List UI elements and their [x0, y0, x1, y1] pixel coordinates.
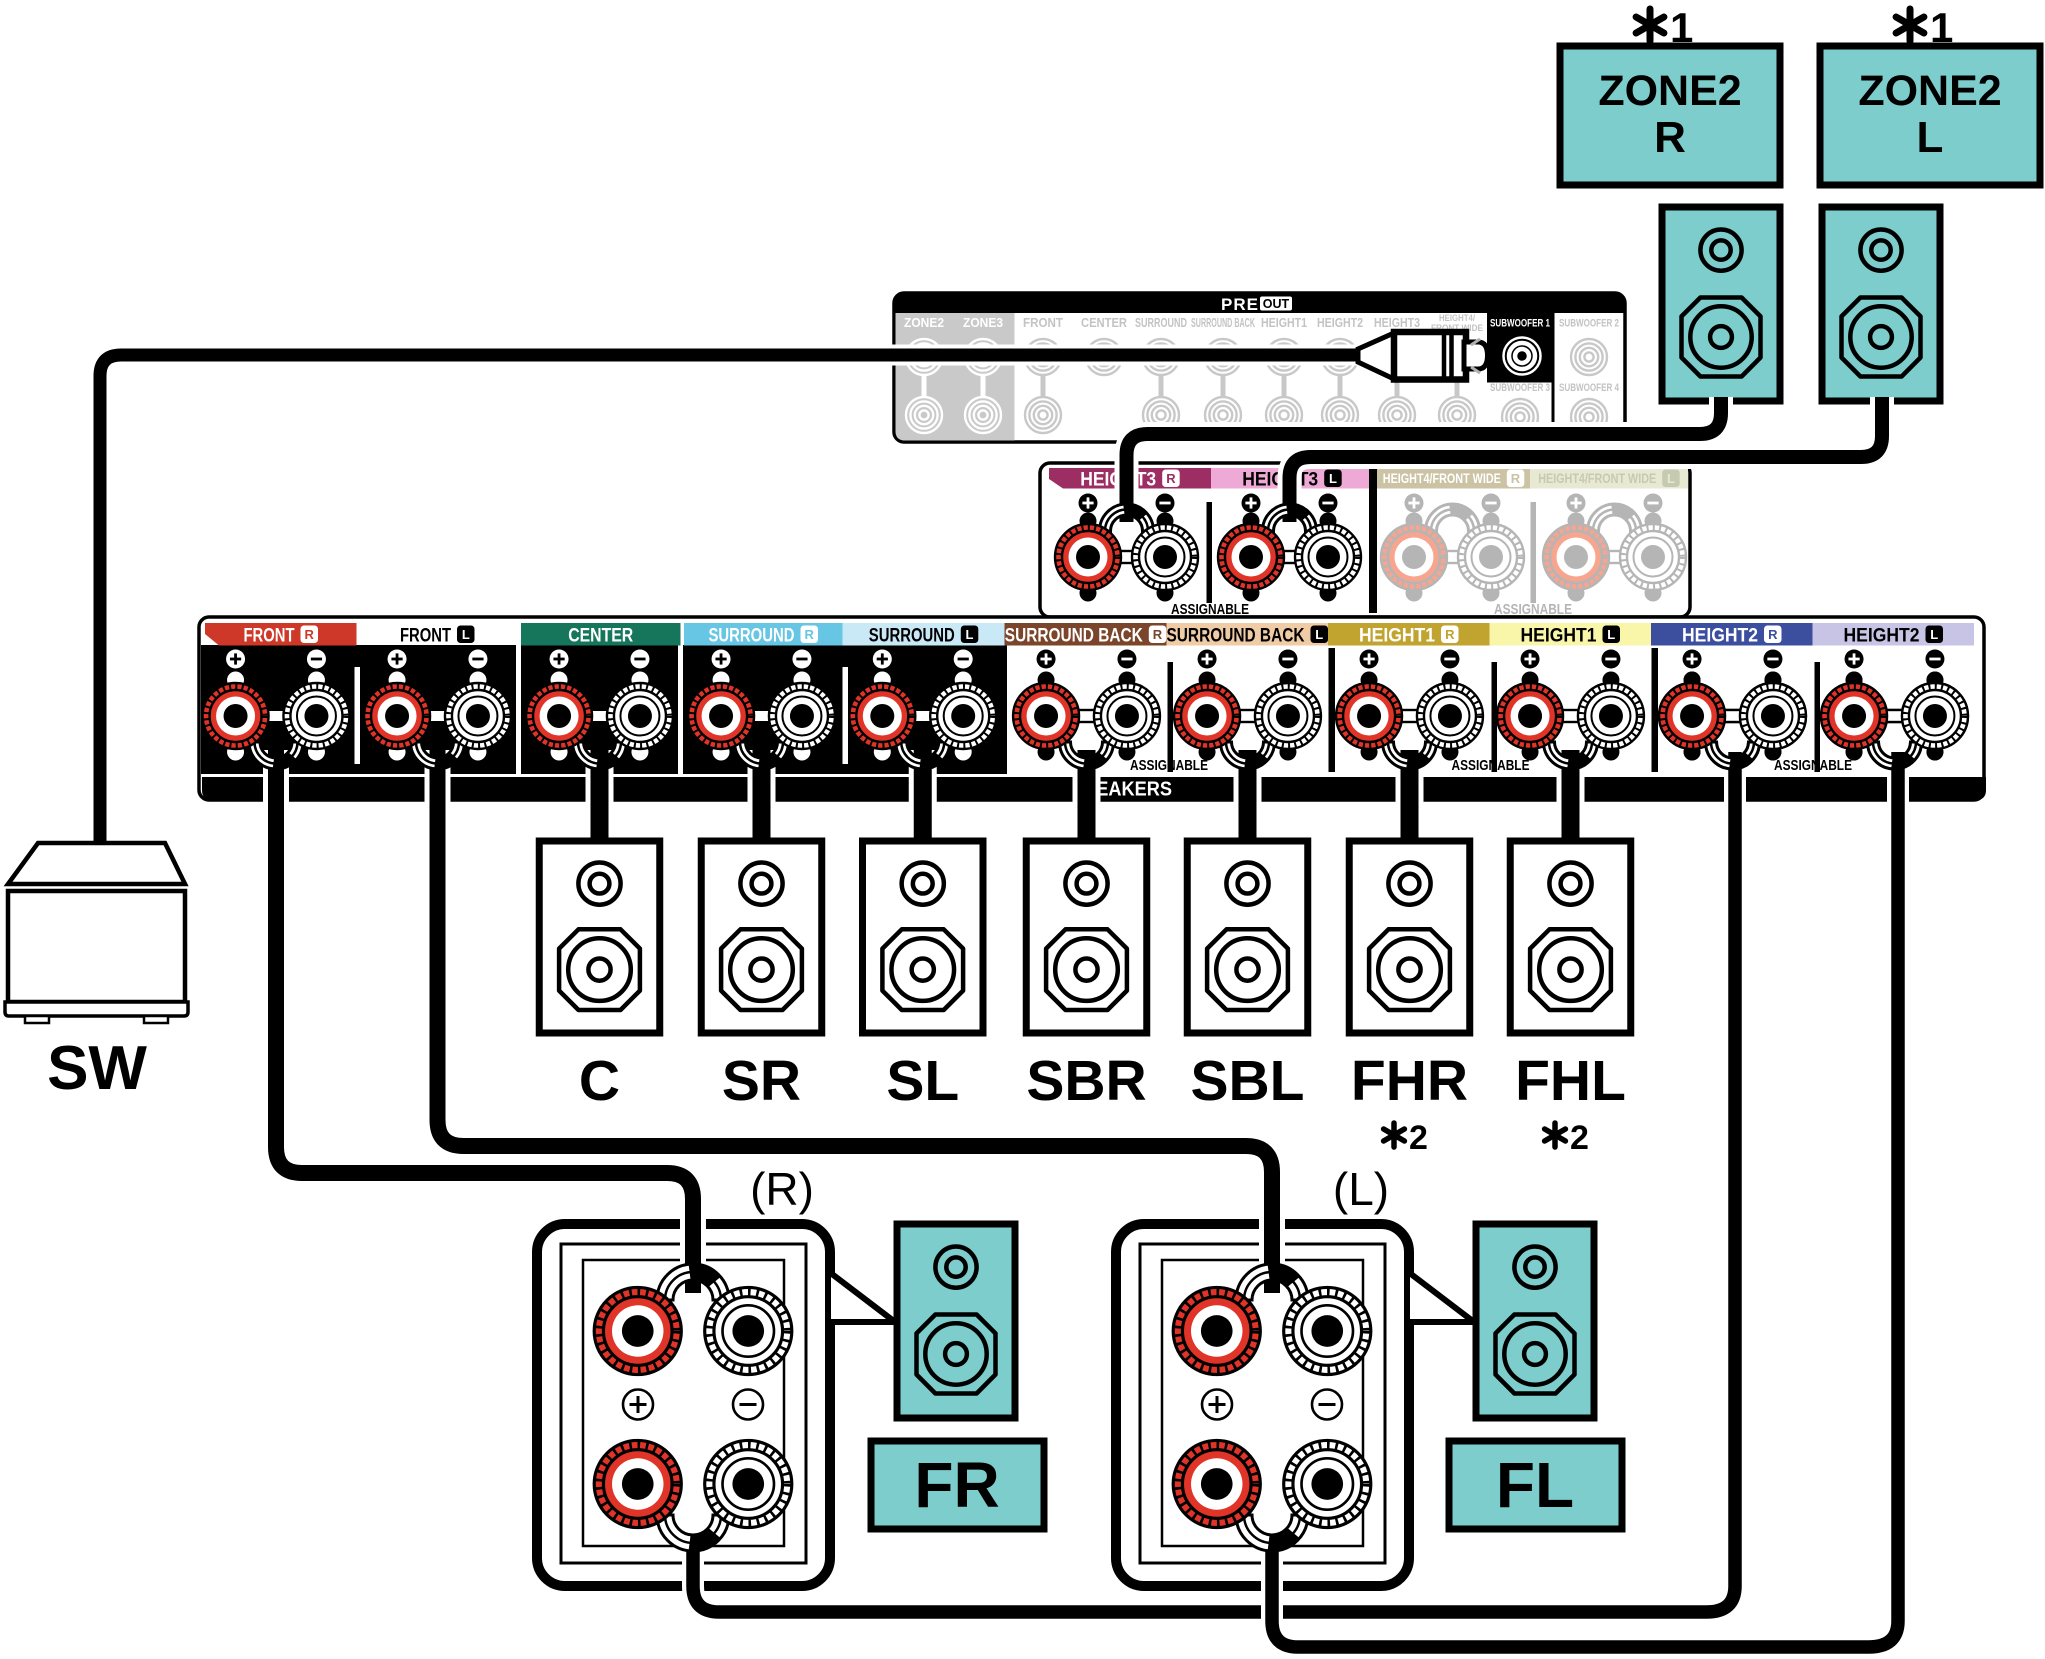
svg-text:FHR: FHR — [1351, 1049, 1468, 1113]
svg-text:(R): (R) — [750, 1163, 814, 1215]
svg-text:2: 2 — [1409, 1119, 1428, 1157]
svg-text:SUBWOOFER 2: SUBWOOFER 2 — [1559, 318, 1619, 330]
svg-text:(L): (L) — [1333, 1163, 1389, 1215]
svg-text:ASSIGNABLE: ASSIGNABLE — [1130, 757, 1208, 774]
svg-text:HEIGHT1: HEIGHT1 — [1521, 624, 1597, 646]
svg-text:R: R — [1153, 627, 1163, 642]
svg-text:SBR: SBR — [1026, 1049, 1146, 1113]
svg-text:ZONE3: ZONE3 — [963, 316, 1003, 330]
svg-text:HEIGHT2: HEIGHT2 — [1844, 624, 1920, 646]
svg-text:ASSIGNABLE: ASSIGNABLE — [1774, 757, 1852, 774]
svg-text:ZONE2: ZONE2 — [904, 316, 944, 330]
svg-text:L: L — [462, 627, 470, 642]
svg-text:PRE: PRE — [1221, 295, 1259, 314]
svg-text:2: 2 — [1570, 1119, 1589, 1157]
svg-text:HEIGHT1: HEIGHT1 — [1261, 316, 1307, 330]
svg-text:SURROUND BACK: SURROUND BACK — [1005, 624, 1143, 646]
svg-text:L: L — [1930, 627, 1938, 642]
svg-text:L: L — [1667, 471, 1675, 486]
svg-text:SBL: SBL — [1191, 1049, 1305, 1113]
svg-text:SURROUND: SURROUND — [869, 624, 955, 646]
svg-text:SL: SL — [886, 1049, 959, 1113]
svg-text:C: C — [579, 1049, 620, 1113]
svg-text:FRONT: FRONT — [400, 624, 451, 646]
svg-text:FL: FL — [1496, 1449, 1574, 1521]
svg-text:L: L — [966, 627, 974, 642]
svg-text:ZONE2: ZONE2 — [1598, 67, 1741, 115]
svg-text:SURROUND BACK: SURROUND BACK — [1191, 316, 1255, 330]
svg-text:SW: SW — [47, 1034, 147, 1103]
svg-text:CENTER: CENTER — [1081, 316, 1127, 330]
svg-text:R: R — [1511, 471, 1521, 486]
svg-text:FHL: FHL — [1515, 1049, 1626, 1113]
svg-text:FRONT: FRONT — [244, 624, 295, 646]
svg-text:SURROUND: SURROUND — [709, 624, 795, 646]
svg-text:SUBWOOFER 1: SUBWOOFER 1 — [1490, 318, 1550, 330]
svg-text:L: L — [1315, 627, 1323, 642]
svg-text:R: R — [1166, 471, 1176, 486]
svg-text:HEIGHT1: HEIGHT1 — [1359, 624, 1435, 646]
svg-text:ZONE2: ZONE2 — [1858, 67, 2001, 115]
svg-text:HEIGHT2: HEIGHT2 — [1682, 624, 1758, 646]
svg-text:HEIGHT4/FRONT WIDE: HEIGHT4/FRONT WIDE — [1538, 471, 1656, 486]
svg-text:SUBWOOFER 4: SUBWOOFER 4 — [1559, 382, 1620, 394]
svg-text:FRONT: FRONT — [1023, 316, 1063, 330]
svg-text:OUT: OUT — [1263, 297, 1290, 311]
svg-text:L: L — [1607, 627, 1615, 642]
svg-text:SURROUND: SURROUND — [1135, 316, 1187, 330]
svg-text:R: R — [805, 627, 815, 642]
svg-text:HEIGHT4/FRONT WIDE: HEIGHT4/FRONT WIDE — [1383, 471, 1501, 486]
svg-text:SR: SR — [722, 1049, 801, 1113]
svg-text:FR: FR — [914, 1449, 999, 1521]
svg-text:CENTER: CENTER — [568, 624, 633, 646]
svg-text:L: L — [1917, 113, 1944, 162]
svg-text:R: R — [1654, 113, 1686, 162]
svg-text:R: R — [1445, 627, 1455, 642]
svg-text:R: R — [305, 627, 315, 642]
svg-text:SUBWOOFER 3: SUBWOOFER 3 — [1490, 382, 1550, 394]
svg-text:R: R — [1768, 627, 1778, 642]
svg-text:ASSIGNABLE: ASSIGNABLE — [1452, 757, 1530, 774]
svg-text:L: L — [1329, 471, 1337, 486]
svg-text:HEIGHT3: HEIGHT3 — [1374, 316, 1420, 330]
svg-text:SURROUND BACK: SURROUND BACK — [1167, 624, 1305, 646]
svg-text:HEIGHT2: HEIGHT2 — [1317, 316, 1363, 330]
